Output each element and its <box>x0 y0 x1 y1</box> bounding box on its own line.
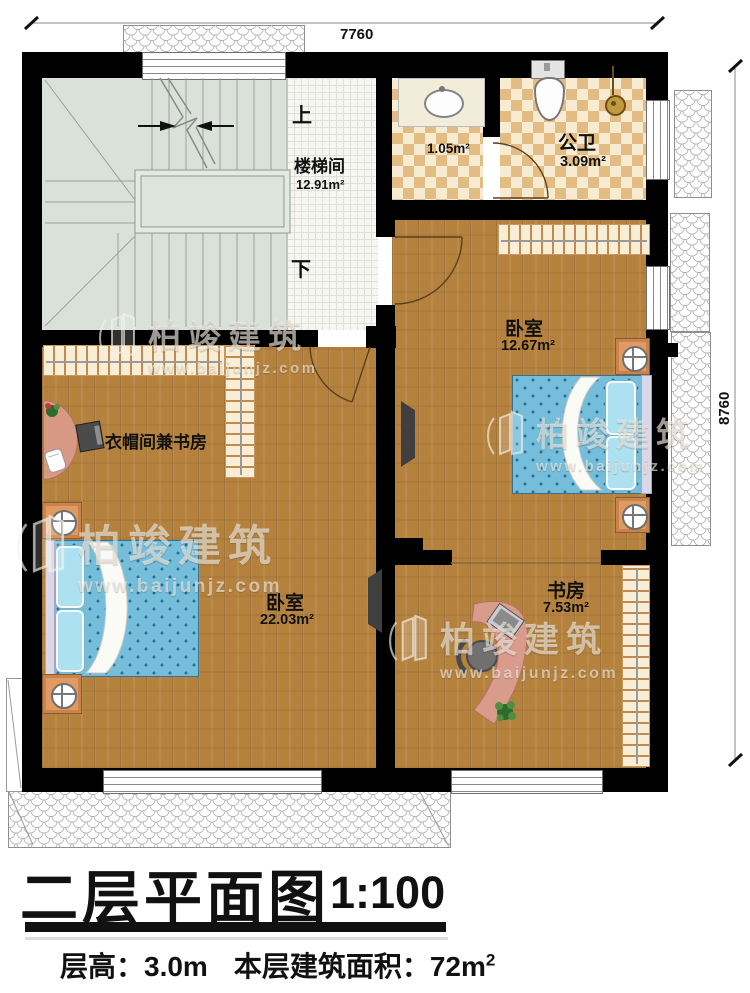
title-block: 二层平面图 1:100 层高：3.0m本层建筑面积：72m2 柏竣建筑 www <box>0 846 750 993</box>
plan-linework <box>0 0 750 993</box>
label-bedroom-left: 卧室 <box>266 594 304 614</box>
label-bathroom: 公卫 <box>558 134 596 154</box>
floor-height: 层高：3.0m <box>60 951 208 982</box>
study-plant-icon <box>495 701 516 722</box>
floor-area: 本层建筑面积：72m <box>234 951 486 982</box>
dimension-lines <box>31 23 735 760</box>
cloakroom-plant-icon <box>45 403 60 417</box>
label-stairwell: 楼梯间 <box>294 158 345 176</box>
dimension-top: 7760 <box>340 26 373 43</box>
bed-right-blanket <box>562 377 602 490</box>
label-bathroom-area: 3.09m² <box>560 155 606 170</box>
label-stairwell-area: 12.91m² <box>296 178 344 192</box>
roof-diagonals <box>8 680 448 845</box>
floor-area-sup: 2 <box>486 951 495 970</box>
stair-landing <box>135 170 290 233</box>
label-study: 书房 <box>547 582 585 602</box>
title-underline-light <box>25 937 448 940</box>
label-cloak-study: 衣帽间兼书房 <box>105 434 207 452</box>
door-bedroom-right <box>395 237 462 304</box>
study-chair <box>459 640 497 672</box>
drawing-scale: 1:100 <box>330 867 445 919</box>
label-bedroom-right-area: 12.67m² <box>501 339 555 354</box>
label-bedroom-left-area: 22.03m² <box>260 613 314 628</box>
cloakroom-cup-icon <box>44 448 67 473</box>
label-vestibule-area: 1.05m² <box>427 142 470 156</box>
door-left-room <box>310 347 370 402</box>
label-down: 下 <box>291 260 311 281</box>
floor-info: 层高：3.0m本层建筑面积：72m2 <box>60 945 495 985</box>
label-bedroom-right: 卧室 <box>505 320 543 340</box>
floorplan-page: 柏竣建筑 www.baijunjz.com 柏竣建筑 www.baijunjz.… <box>0 0 750 993</box>
dimension-right: 8760 <box>716 392 733 425</box>
label-up: 上 <box>292 106 312 127</box>
title-underline <box>25 922 446 932</box>
cloakroom-monitor-icon <box>76 421 104 452</box>
label-study-area: 7.53m² <box>543 601 589 616</box>
door-bathroom <box>493 143 548 198</box>
bed-left-blanket <box>86 542 127 673</box>
dimension-ticks <box>25 17 742 766</box>
